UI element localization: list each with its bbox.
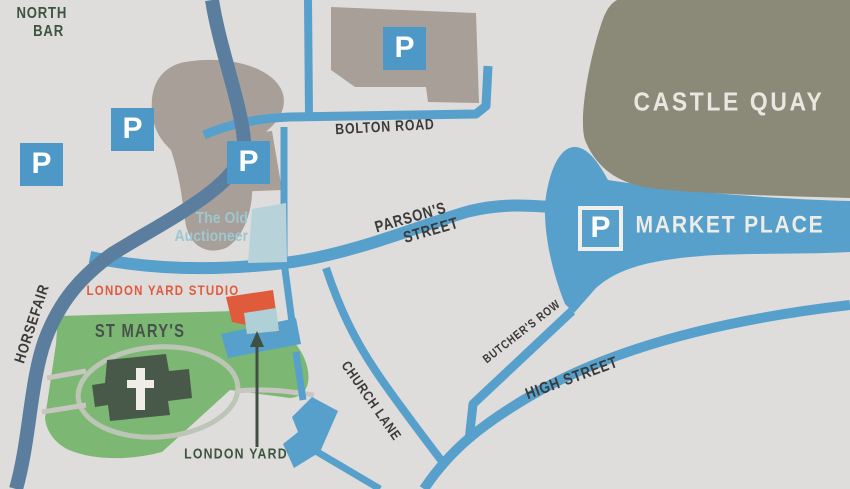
parking-icon: P — [111, 108, 154, 151]
parking-icon: P — [20, 143, 63, 186]
area-label-market-place: MARKET PLACE — [636, 213, 825, 240]
parking-letter: P — [590, 211, 610, 245]
parking-letter: P — [238, 145, 258, 179]
street-label-north-bar: NORTH BAR — [16, 5, 64, 41]
illustrated-street-map: P P P P P NORTH BAR BOLTON ROAD PARSON'S… — [0, 0, 850, 489]
old-auctioneer-line1: The Old — [158, 210, 248, 228]
area-label-st-marys: ST MARY'S — [95, 321, 185, 341]
north-bar-line2: BAR — [16, 23, 64, 41]
parking-icon-framed: P — [578, 206, 623, 251]
parking-icon: P — [383, 27, 426, 70]
parking-letter: P — [31, 147, 51, 181]
old-auctioneer-building — [248, 203, 287, 263]
parking-letter: P — [394, 31, 414, 65]
parking-icon: P — [227, 141, 270, 184]
map-canvas — [0, 0, 850, 489]
place-label-old-auctioneer: The Old Auctioneer — [158, 210, 248, 246]
old-auctioneer-line2: Auctioneer — [158, 228, 248, 246]
road-yard-exit — [314, 450, 380, 489]
place-label-london-yard: LONDON YARD — [184, 447, 288, 464]
north-bar-line1: NORTH — [16, 5, 64, 23]
area-label-castle-quay: CASTLE QUAY — [634, 87, 825, 116]
parking-letter: P — [122, 112, 142, 146]
place-label-london-yard-studio: LONDON YARD STUDIO — [87, 283, 240, 299]
road-high-street — [424, 305, 850, 489]
road-north-stub — [308, 0, 309, 116]
